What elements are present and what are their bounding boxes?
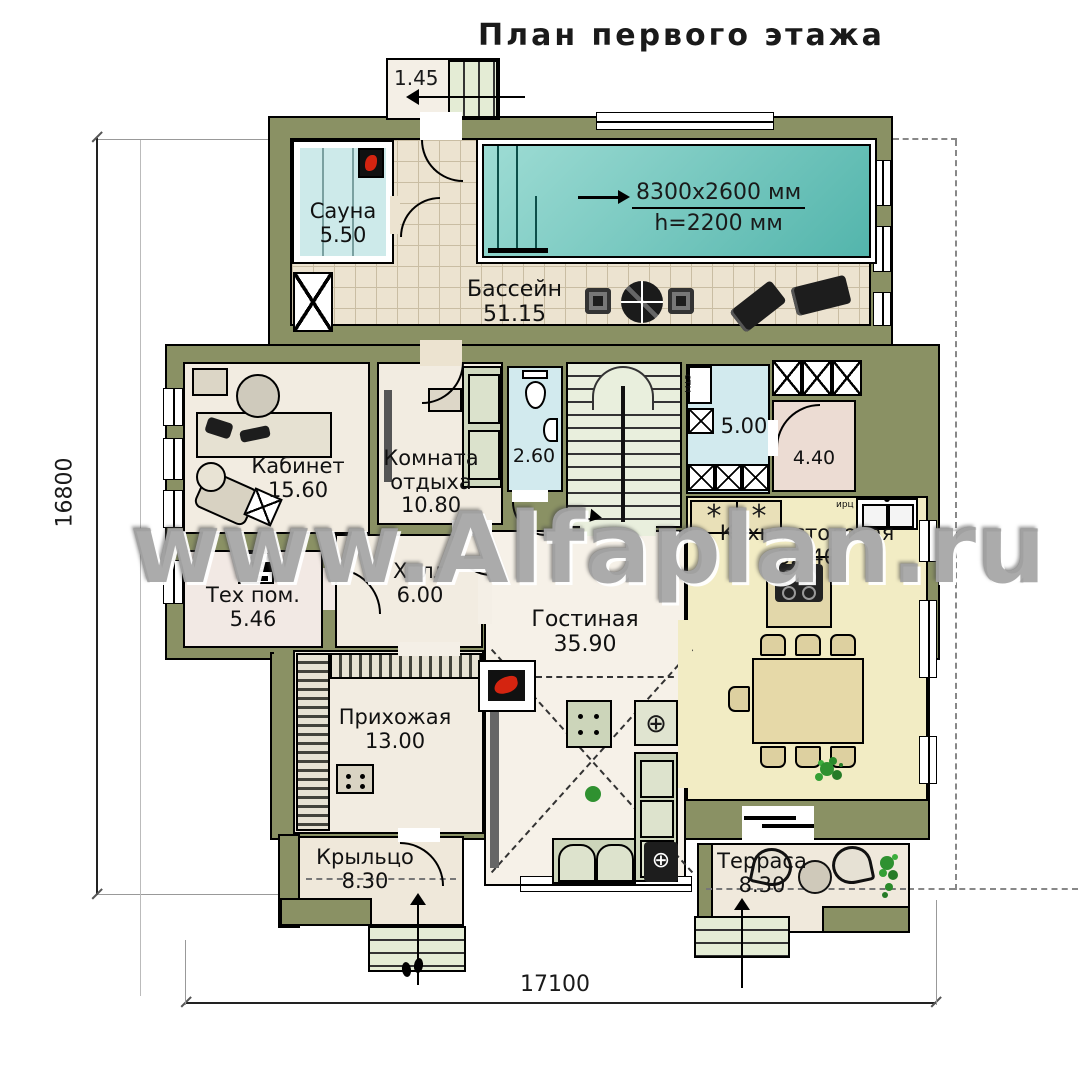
entry-closet-rail [330, 653, 482, 679]
dim-line-bottom [185, 1002, 937, 1004]
entry-bench [336, 764, 374, 794]
page-title: План первого этажа [478, 18, 885, 53]
living-dashed-line [536, 676, 684, 678]
window-study [163, 438, 183, 480]
terrace-wall-notch [822, 906, 910, 933]
laundry-hatch-box [715, 464, 742, 491]
sofa-cushion [596, 844, 634, 882]
room-label-wc: 2.60 [505, 446, 563, 467]
dining-chair [830, 634, 856, 656]
pool-ladder-rail [535, 196, 537, 252]
lounge-sofa-cushion [468, 374, 500, 424]
wall-seam-patch [270, 346, 890, 350]
dim-ext-dashed [908, 888, 1078, 890]
study-shelf [192, 368, 228, 396]
living-armchair [566, 700, 612, 748]
living-sofa [552, 838, 636, 884]
room-label-pool: Бассейн51.15 [452, 278, 577, 327]
door-gap-front [398, 828, 440, 842]
pool-step-edge [488, 248, 548, 253]
pool-ladder-rail [497, 146, 499, 252]
laundry-hatch-box [742, 464, 769, 491]
sofa-cushion [640, 800, 674, 838]
dim-bottom-value: 17100 [520, 972, 590, 997]
window-pool-top [596, 112, 774, 130]
pool-parasol-table [621, 281, 663, 323]
laundry-hatch-box [688, 408, 714, 434]
pool-note-depth: h=2200 мм [632, 209, 805, 236]
dim-line-left [96, 138, 98, 895]
pool-ladder-rail [516, 146, 518, 252]
pool-seat [585, 288, 611, 314]
dining-table [752, 658, 864, 744]
closet-hatch [832, 360, 862, 396]
wc-sink [543, 418, 558, 442]
entry-arrow-head [406, 89, 419, 105]
terrace-arrow-line [741, 908, 743, 988]
pool-note-size: 8300х2600 мм [632, 180, 805, 209]
shaft-hatch [293, 272, 333, 332]
cushion-dots [578, 714, 583, 719]
pool-note-arrow-line [578, 196, 622, 199]
room-label-pantry: 4.40 [785, 448, 843, 469]
fireplace-flame [493, 675, 520, 696]
dining-chair [830, 746, 856, 768]
closet-hatch [802, 360, 832, 396]
entry-arrow-line [415, 96, 525, 98]
porch-wall-corner [280, 898, 372, 926]
room-label-living: Гостиная35.90 [484, 608, 686, 657]
floor-plan-canvas: План первого этажа 16800 17100 1.45 Саун… [0, 0, 1080, 1080]
fireplace [478, 660, 536, 712]
room-label-porch: Крыльцо8.30 [300, 846, 430, 893]
dining-chair [795, 634, 821, 656]
pool-note: 8300х2600 мм h=2200 мм [632, 180, 805, 236]
opening-hall-entry [398, 642, 460, 656]
terrace-plant [880, 856, 894, 870]
living-tv-wall [490, 712, 499, 868]
room-label-entry: Прихожая13.00 [310, 706, 480, 753]
dim-ext-dashed [893, 138, 957, 140]
living-armchair-round: ⊕ [634, 700, 678, 746]
wc-toilet-tank [522, 370, 548, 379]
fireplace-firebox [488, 670, 525, 701]
door-gap-top-porch [420, 112, 462, 140]
door-gap-terrace [742, 806, 814, 840]
room-label-sauna: Сауна5.50 [292, 200, 394, 247]
top-porch-steps [448, 60, 498, 118]
room-label-terrace: Терраса8.30 [697, 850, 827, 897]
dim-left-value: 16800 [53, 458, 78, 528]
bench-dots [346, 774, 351, 779]
dim-ext [98, 139, 268, 140]
window-kitchen [919, 600, 937, 678]
living-side-table: ⊕ [644, 842, 678, 882]
sofa-cushion [640, 760, 674, 798]
window-pool-right [873, 292, 891, 326]
dining-chair [728, 686, 750, 712]
sauna-fire-icon [365, 155, 377, 171]
watermark: www.Alfaplan.ru [130, 492, 1046, 606]
kitchen-plant [820, 762, 834, 776]
sauna-stove-icon [358, 148, 384, 178]
top-porch-dim: 1.45 [394, 66, 439, 90]
dining-chair [760, 634, 786, 656]
pool-note-arrow-head [618, 190, 630, 204]
dining-chair [760, 746, 786, 768]
dim-ext [185, 940, 186, 1005]
dim-ext [936, 900, 937, 1005]
sliding-door-leaf [744, 816, 796, 820]
study-chair [236, 374, 280, 418]
sofa-cushion [558, 844, 596, 882]
pool-seat [668, 288, 694, 314]
sliding-door-leaf [762, 824, 814, 828]
washing-machine: стм [688, 366, 712, 404]
window-kitchen [919, 736, 937, 784]
dining-chair [795, 746, 821, 768]
living-plant [585, 786, 601, 802]
washer-label: стм [682, 374, 693, 393]
closet-hatch [772, 360, 802, 396]
dim-ext [98, 894, 278, 895]
laundry-hatch-box [688, 464, 715, 491]
room-label-laundry: 5.00 [716, 415, 772, 439]
window-study [163, 388, 183, 426]
